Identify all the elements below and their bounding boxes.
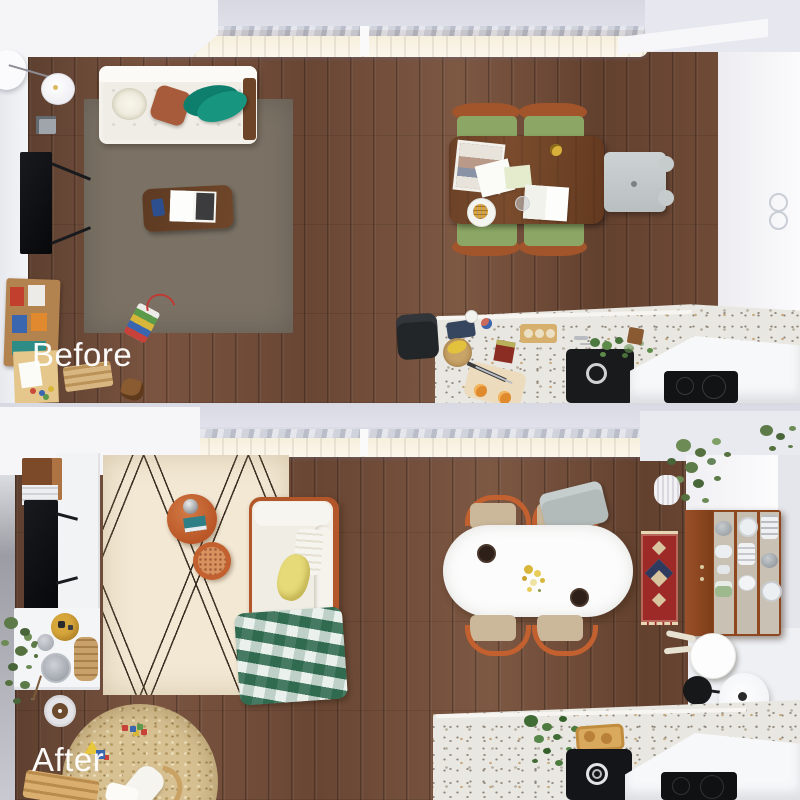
disc-lamp: [41, 73, 75, 105]
olive-plant-pot: [44, 695, 76, 727]
cabinet-knob: [631, 181, 637, 187]
faucet: [574, 336, 588, 340]
coffee-cup: [477, 544, 496, 563]
stove-burner: [672, 777, 690, 795]
book: [12, 315, 27, 333]
flower-centerpiece: [524, 565, 533, 574]
sofa-wood-trim: [243, 78, 256, 140]
sheer-curtain: [138, 36, 648, 57]
stove-burner: [702, 375, 726, 399]
wicker-stool: [74, 637, 98, 681]
orange-half: [498, 391, 511, 403]
book: [28, 285, 45, 306]
white-stool-seat: [690, 633, 736, 679]
glass-vase: [41, 653, 71, 683]
wall-hook-ring: [769, 211, 788, 230]
tv-screen: [20, 152, 52, 254]
book-photo: [196, 193, 215, 221]
mug: [738, 575, 756, 591]
white-cups: [715, 545, 732, 558]
oval-dining-table: [443, 525, 633, 617]
sink-drain: [586, 763, 608, 785]
plaid-blanket: [234, 606, 348, 705]
cup: [465, 310, 478, 323]
jar: [524, 329, 533, 338]
red-recipe-box: [493, 340, 515, 364]
floor-lamp-base: [683, 676, 712, 705]
sofa-armrest: [254, 502, 331, 526]
orange-half: [474, 384, 487, 397]
before-after-room-render: Before: [0, 0, 800, 800]
potted-tree-foliage: [676, 439, 691, 452]
window-frame-divider: [360, 429, 368, 456]
corner-plant: [760, 425, 773, 436]
panel-before: Before: [0, 0, 800, 403]
plate-stack: [738, 543, 755, 565]
lamp-bulb-dot: [53, 85, 58, 90]
drinking-glass: [515, 196, 530, 211]
window-frame-divider: [360, 26, 369, 56]
crayons: [30, 388, 36, 394]
green-tin: [715, 581, 732, 597]
plant-pot-ribbed: [654, 475, 680, 505]
corner-wall: [640, 411, 800, 461]
white-knit-pillow: [112, 88, 147, 120]
wall-thermostat: [36, 116, 56, 134]
plate: [761, 581, 782, 602]
smartphone: [151, 198, 165, 217]
counter-plant: [524, 715, 538, 727]
lamp-bulb: [738, 692, 747, 701]
sofa-backrest: [99, 66, 257, 82]
book: [31, 313, 47, 331]
plant-pot: [627, 327, 645, 345]
tray-bowl: [584, 731, 595, 742]
panel-after: After: [0, 403, 800, 800]
plant-sprig: [24, 633, 32, 641]
ceiling-soffit: [0, 0, 218, 57]
decor-sphere: [183, 499, 198, 514]
hutch-door: [685, 510, 713, 636]
yellow-tray-table: [51, 613, 79, 641]
compost-bin: [395, 313, 439, 361]
yellow-knob: [550, 144, 562, 156]
perforated-table-top: [198, 547, 226, 575]
sink-drain: [586, 363, 607, 384]
cabinet-scallop: [658, 190, 674, 206]
stove-burner: [676, 377, 694, 395]
book: [10, 287, 24, 306]
stove-burner: [700, 775, 724, 799]
tray-items: [58, 621, 65, 628]
olive-plant-foliage: [4, 617, 18, 629]
cabinet-scallop: [658, 156, 674, 172]
hutch-knob: [700, 565, 704, 569]
plate-stack: [761, 515, 778, 539]
glass-vase: [37, 634, 54, 651]
waffle: [473, 204, 488, 219]
before-label: Before: [32, 336, 132, 374]
wall-hook-ring: [769, 193, 788, 212]
toy-blocks: [122, 725, 128, 731]
media-wall-panel: [56, 453, 100, 611]
right-wall: [718, 32, 800, 354]
herb-plant: [590, 338, 600, 347]
after-label: After: [32, 741, 104, 779]
tv-screen: [24, 500, 58, 610]
gray-bowl: [715, 521, 732, 536]
cup-stack: [738, 517, 758, 537]
coffee-cup: [570, 588, 589, 607]
pencil-cup: [481, 318, 492, 329]
gray-bowl: [761, 553, 778, 568]
